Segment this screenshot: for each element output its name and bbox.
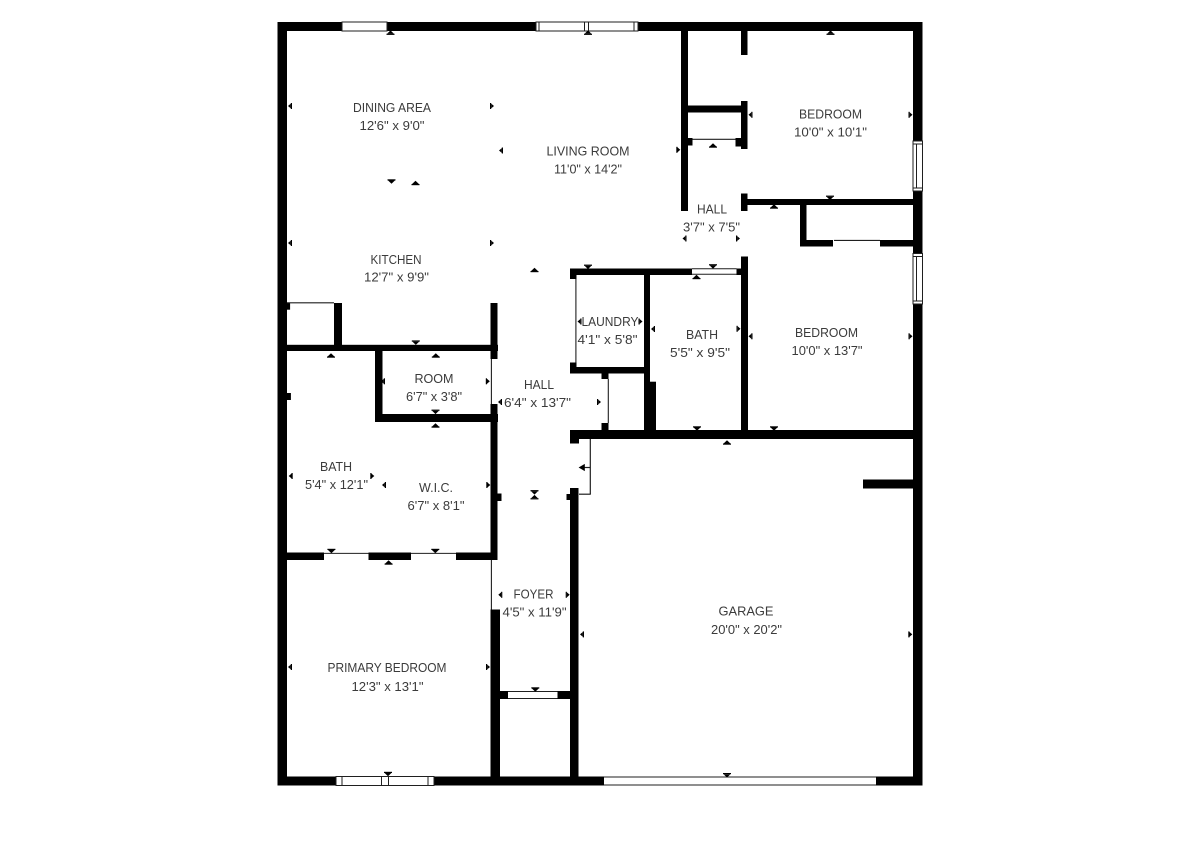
svg-text:HALL: HALL [697, 202, 727, 217]
svg-text:BATH: BATH [320, 459, 352, 474]
svg-text:KITCHEN: KITCHEN [371, 252, 422, 267]
svg-text:4'1" x 5'8": 4'1" x 5'8" [578, 332, 638, 347]
svg-text:W.I.C.: W.I.C. [419, 480, 453, 495]
svg-text:ROOM: ROOM [415, 371, 454, 386]
svg-text:12'3" x 13'1": 12'3" x 13'1" [352, 679, 424, 694]
svg-text:6'4" x 13'7": 6'4" x 13'7" [504, 395, 571, 410]
svg-text:20'0" x 20'2": 20'0" x 20'2" [711, 622, 782, 637]
svg-text:BEDROOM: BEDROOM [795, 325, 858, 340]
svg-text:LAUNDRY: LAUNDRY [582, 314, 639, 329]
svg-text:5'5" x 9'5": 5'5" x 9'5" [670, 345, 730, 360]
svg-text:GARAGE: GARAGE [719, 604, 774, 619]
svg-text:6'7" x 3'8": 6'7" x 3'8" [406, 389, 462, 404]
svg-text:12'7" x 9'9": 12'7" x 9'9" [364, 270, 429, 285]
svg-text:11'0" x 14'2": 11'0" x 14'2" [554, 162, 622, 177]
svg-text:5'4" x 12'1": 5'4" x 12'1" [305, 477, 368, 492]
svg-text:BATH: BATH [686, 327, 718, 342]
svg-text:10'0" x 13'7": 10'0" x 13'7" [792, 343, 863, 358]
svg-text:6'7" x 8'1": 6'7" x 8'1" [408, 498, 465, 513]
svg-text:4'5" x 11'9": 4'5" x 11'9" [503, 605, 567, 620]
svg-text:PRIMARY BEDROOM: PRIMARY BEDROOM [328, 660, 447, 675]
svg-text:LIVING ROOM: LIVING ROOM [547, 144, 630, 159]
svg-text:DINING AREA: DINING AREA [353, 100, 431, 115]
svg-text:BEDROOM: BEDROOM [799, 107, 862, 122]
svg-text:12'6" x 9'0": 12'6" x 9'0" [360, 118, 425, 133]
svg-text:3'7" x 7'5": 3'7" x 7'5" [683, 220, 740, 235]
svg-text:10'0" x 10'1": 10'0" x 10'1" [794, 125, 867, 140]
svg-text:FOYER: FOYER [514, 587, 554, 602]
svg-text:HALL: HALL [524, 377, 554, 392]
